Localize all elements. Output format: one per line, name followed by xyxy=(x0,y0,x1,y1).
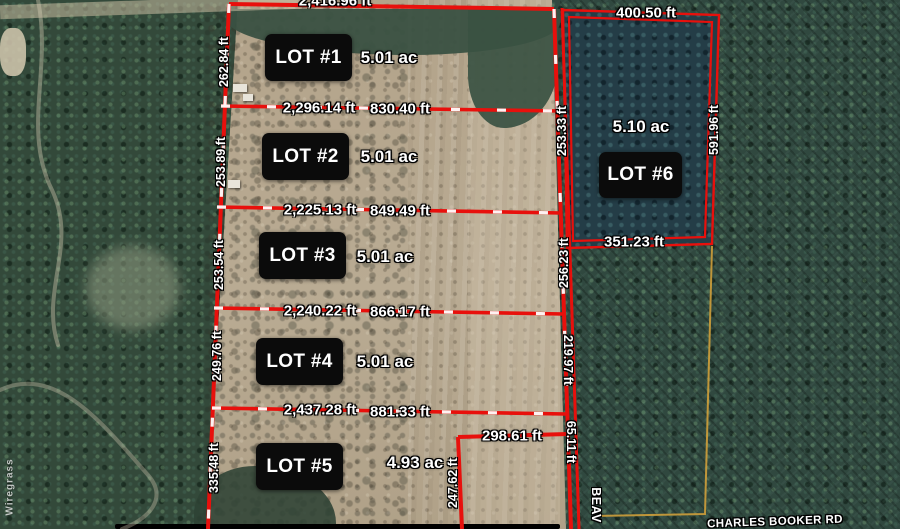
map-watermark: Wiregrass xyxy=(5,458,16,515)
lot-6-label: LOT #6 xyxy=(607,164,673,186)
lot5-west-measurement: 335.48 ft xyxy=(207,443,221,493)
lot-2-label: LOT #2 xyxy=(272,146,338,168)
lot4-west-measurement: 249.76 ft xyxy=(210,331,224,381)
divider-1-west-measurement: 2,296.14 ft xyxy=(283,100,356,117)
lot-5-acreage: 4.93 ac xyxy=(387,453,444,473)
lot-5-label-box: LOT #5 xyxy=(256,443,343,490)
lot1-west-measurement: 262.84 ft xyxy=(217,37,231,87)
lot-6-acreage: 5.10 ac xyxy=(613,117,670,137)
lot2-west-measurement: 253.89 ft xyxy=(214,137,228,187)
forest-trail xyxy=(38,0,61,345)
divider-4-west-measurement: 2,437.28 ft xyxy=(284,402,357,419)
lot-6-label-box: LOT #6 xyxy=(599,152,682,198)
lot-2-label-box: LOT #2 xyxy=(262,133,349,180)
lot6-east-measurement: 591.96 ft xyxy=(707,105,721,155)
divider-1-east-measurement: 830.40 ft xyxy=(370,101,430,118)
lot-3-acreage: 5.01 ac xyxy=(357,247,414,267)
divider-2-west-measurement: 2,225.13 ft xyxy=(284,202,357,219)
lot-2-acreage: 5.01 ac xyxy=(361,147,418,167)
adjacent-parcel-boundary-yellow xyxy=(593,246,712,516)
main-parcel-north-line xyxy=(229,4,554,9)
lot6-north-measurement: 400.50 ft xyxy=(616,5,676,22)
lot-3-label-box: LOT #3 xyxy=(259,232,346,279)
lot-5-label: LOT #5 xyxy=(266,456,332,478)
lot6-south-measurement: 351.23 ft xyxy=(604,234,664,251)
east-road-name: BEAV xyxy=(589,487,603,522)
forest-trail xyxy=(0,384,156,529)
lot-1-label-box: LOT #1 xyxy=(265,34,352,81)
lot-1-label: LOT #1 xyxy=(275,47,341,69)
divider-3-west-measurement: 2,240.22 ft xyxy=(284,303,357,320)
lot5-north-jog-measurement: 298.61 ft xyxy=(482,428,542,445)
lot-1-acreage: 5.01 ac xyxy=(361,48,418,68)
lot3-west-measurement: 253.54 ft xyxy=(212,240,226,290)
divider-4-east-measurement: 881.33 ft xyxy=(370,404,430,421)
plat-map: LOT #1 5.01 ac LOT #2 5.01 ac LOT #3 5.0… xyxy=(0,0,900,529)
lot-4-acreage: 5.01 ac xyxy=(357,352,414,372)
road-frontage-upper-measurement: 253.33 ft xyxy=(555,106,569,156)
top-boundary-measurement: 2,416.96 ft xyxy=(299,0,372,10)
lot5-east-leg-measurement: 247.62 ft xyxy=(446,458,460,508)
divider-3-east-measurement: 866.17 ft xyxy=(370,304,430,321)
road-frontage-bottom-measurement: 65.11 ft xyxy=(564,421,578,463)
divider-2-east-measurement: 849.49 ft xyxy=(370,203,430,220)
road-frontage-mid-measurement: 256.23 ft xyxy=(557,238,571,288)
road-frontage-lower-measurement: 219.97 ft xyxy=(561,335,575,385)
lot-4-label-box: LOT #4 xyxy=(256,338,343,385)
lot-4-label: LOT #4 xyxy=(266,351,332,373)
boundary-lines-svg xyxy=(0,0,900,529)
lot-3-label: LOT #3 xyxy=(269,245,335,267)
